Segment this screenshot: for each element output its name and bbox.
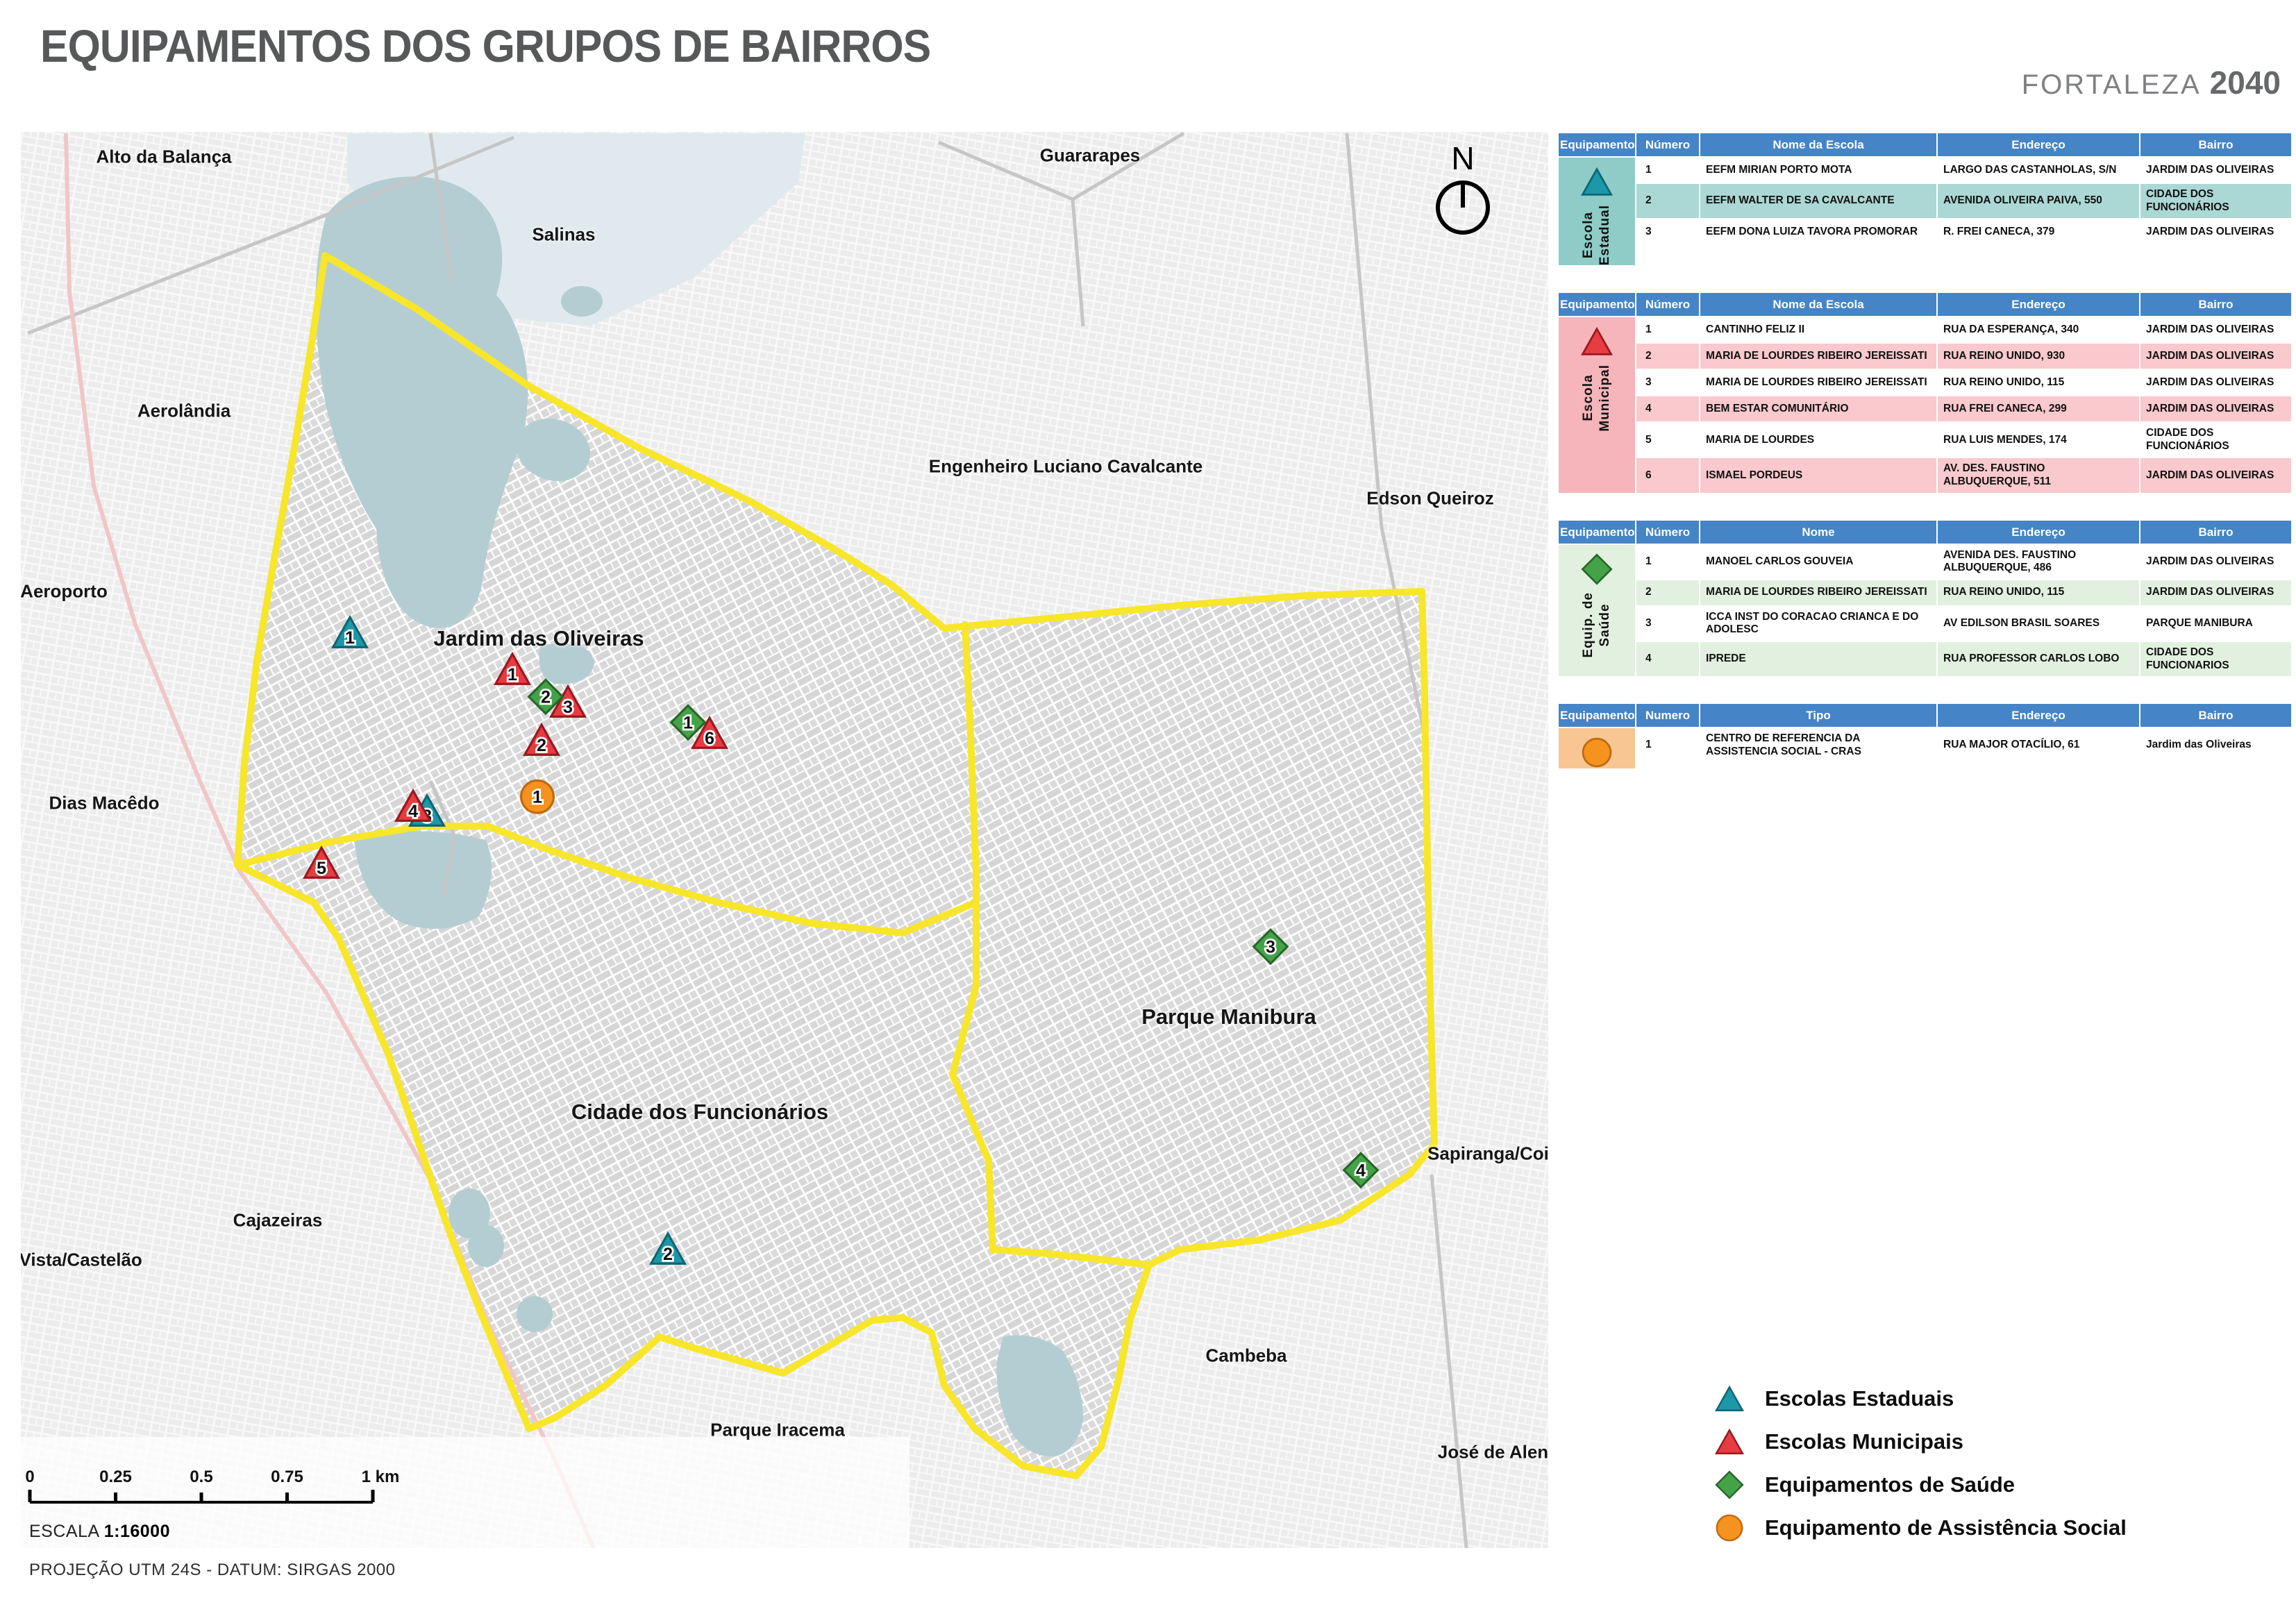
table-header-row: EquipamentoNúmeroNome da EscolaEndereçoB… bbox=[1559, 133, 2291, 156]
table-cell: 3 bbox=[1636, 370, 1699, 395]
map-marker-saude-3[interactable]: 3 bbox=[1252, 928, 1289, 966]
map-label: Aeroporto bbox=[21, 581, 108, 603]
table-cell: RUA REINO UNIDO, 115 bbox=[1938, 580, 2139, 605]
column-header: Número bbox=[1636, 133, 1699, 156]
social-icon: 1 bbox=[519, 778, 556, 816]
table-cell: MARIA DE LOURDES RIBEIRO JEREISSATI bbox=[1700, 370, 1936, 395]
map-label: Cajazeiras bbox=[233, 1210, 323, 1231]
table-cell: CENTRO DE REFERENCIA DA ASSISTENCIA SOCI… bbox=[1700, 728, 1936, 762]
table-group-cell: Escola Municipal bbox=[1559, 317, 1635, 492]
legend: Escolas EstaduaisEscolas MunicipaisEquip… bbox=[1713, 1383, 2127, 1544]
saude-icon: 2 bbox=[527, 678, 564, 716]
estadual-icon: 1 bbox=[331, 614, 369, 651]
municipal-icon bbox=[1715, 1427, 1744, 1456]
table-row: 2EEFM WALTER DE SA CAVALCANTEAVENIDA OLI… bbox=[1636, 184, 2291, 218]
municipal-icon: 2 bbox=[523, 721, 560, 759]
table-cell: 1 bbox=[1636, 545, 1699, 579]
svg-text:1: 1 bbox=[683, 714, 693, 733]
table-cell: CIDADE DOS FUNCIONÁRIOS bbox=[2140, 423, 2291, 457]
table-cell: Jardim das Oliveiras bbox=[2140, 728, 2291, 762]
table-row: 1CENTRO DE REFERENCIA DA ASSISTENCIA SOC… bbox=[1636, 728, 2291, 762]
legend-item: Escolas Municipais bbox=[1713, 1426, 2127, 1458]
table-cell: MARIA DE LOURDES bbox=[1700, 423, 1936, 457]
table-cell: JARDIM DAS OLIVEIRAS bbox=[2140, 370, 2291, 395]
scale-tick-label: 1 km bbox=[362, 1468, 400, 1487]
table-row: 2MARIA DE LOURDES RIBEIRO JEREISSATIRUA … bbox=[1636, 344, 2291, 369]
table-row: 4BEM ESTAR COMUNITÁRIORUA FREI CANECA, 2… bbox=[1636, 396, 2291, 421]
page: { "header": { "title": "EQUIPAMENTOS DOS… bbox=[0, 0, 2296, 1623]
table-cell: MANOEL CARLOS GOUVEIA bbox=[1700, 545, 1936, 579]
table-cell: AV. DES. FAUSTINO ALBUQUERQUE, 511 bbox=[1938, 458, 2139, 492]
scale-bar-graphic bbox=[28, 1488, 382, 1505]
svg-text:3: 3 bbox=[563, 698, 573, 717]
table-cell: R. FREI CANECA, 379 bbox=[1938, 219, 2139, 244]
table-cell: AVENIDA OLIVEIRA PAIVA, 550 bbox=[1938, 184, 2139, 218]
scale-tick-labels: 00.250.50.751 km bbox=[28, 1468, 403, 1488]
scale-value: 1:16000 bbox=[104, 1522, 170, 1541]
table-cell: JARDIM DAS OLIVEIRAS bbox=[2140, 396, 2291, 421]
scale-tick-label: 0.25 bbox=[99, 1468, 132, 1487]
map-label: Cambeba bbox=[1205, 1345, 1287, 1367]
table-cell: 1 bbox=[1636, 158, 1699, 183]
table-cell: BEM ESTAR COMUNITÁRIO bbox=[1700, 396, 1936, 421]
map-marker-municipal-4[interactable]: 4 bbox=[394, 787, 432, 825]
table-cell: JARDIM DAS OLIVEIRAS bbox=[2140, 545, 2291, 579]
table-cell: MARIA DE LOURDES RIBEIRO JEREISSATI bbox=[1700, 344, 1936, 369]
map-canvas[interactable]: Alto da BalançaSalinasGuararapesAerolând… bbox=[21, 132, 1548, 1548]
water-pond bbox=[561, 286, 603, 317]
table-cell: 2 bbox=[1636, 184, 1699, 218]
legend-icon bbox=[1713, 1470, 1745, 1499]
brand-logo: FORTALEZA2040 bbox=[2022, 64, 2281, 101]
legend-icon bbox=[1713, 1384, 1745, 1413]
scale-bar: 00.250.50.751 km bbox=[28, 1468, 403, 1508]
column-header: Endereço bbox=[1938, 704, 2139, 727]
table-cell: CIDADE DOS FUNCIONARIOS bbox=[2140, 642, 2291, 676]
legend-label: Equipamento de Assistência Social bbox=[1765, 1515, 2127, 1540]
table-cell: MARIA DE LOURDES RIBEIRO JEREISSATI bbox=[1700, 580, 1936, 605]
municipal-icon: 5 bbox=[303, 844, 340, 882]
table-cell: RUA DA ESPERANÇA, 340 bbox=[1938, 317, 2139, 342]
legend-item: Equipamento de Assistência Social bbox=[1713, 1512, 2127, 1544]
map-label: Edson Queiroz bbox=[1366, 488, 1493, 510]
table-group-cell: Escola Estadual bbox=[1559, 158, 1635, 265]
svg-text:1: 1 bbox=[508, 665, 517, 684]
table-row: 3MARIA DE LOURDES RIBEIRO JEREISSATIRUA … bbox=[1636, 370, 2291, 395]
estadual-icon bbox=[1715, 1384, 1744, 1413]
map-label: Parque Iracema bbox=[710, 1420, 845, 1441]
social-icon bbox=[1581, 737, 1613, 768]
municipal-icon: 1 bbox=[494, 650, 531, 688]
social-icon bbox=[1715, 1513, 1744, 1542]
table-cell: RUA PROFESSOR CARLOS LOBO bbox=[1938, 642, 2139, 676]
legend-label: Equipamentos de Saúde bbox=[1765, 1472, 2015, 1497]
svg-text:4: 4 bbox=[408, 802, 418, 821]
saude-icon: 1 bbox=[669, 704, 707, 741]
map-label: Jardim das Oliveiras bbox=[433, 626, 644, 651]
legend-icon bbox=[1713, 1513, 1745, 1542]
legend-label: Escolas Municipais bbox=[1765, 1429, 1963, 1454]
column-header: Equipamento bbox=[1559, 293, 1635, 316]
svg-text:2: 2 bbox=[663, 1245, 673, 1264]
table-cell: EEFM WALTER DE SA CAVALCANTE bbox=[1700, 184, 1936, 218]
brand-name: FORTALEZA bbox=[2022, 69, 2202, 100]
table-cell: 4 bbox=[1636, 396, 1699, 421]
equipment-table-social: EquipamentosNumeroTipoEndereçoBairro1CEN… bbox=[1559, 704, 2291, 768]
compass-icon bbox=[1432, 174, 1494, 237]
table-cell: JARDIM DAS OLIVEIRAS bbox=[2140, 158, 2291, 183]
municipal-icon: 4 bbox=[394, 787, 432, 825]
water-pond bbox=[517, 1296, 553, 1332]
table-cell: JARDIM DAS OLIVEIRAS bbox=[2140, 580, 2291, 605]
map-label: Sapiranga/Coité bbox=[1427, 1143, 1548, 1165]
map-marker-social-1[interactable]: 1 bbox=[519, 778, 556, 816]
scale-tick-label: 0.5 bbox=[190, 1468, 212, 1487]
svg-text:2: 2 bbox=[537, 736, 546, 755]
table-header-row: EquipamentoNúmeroNomeEndereçoBairro bbox=[1559, 521, 2291, 544]
column-header: Endereço bbox=[1938, 293, 2139, 316]
map-marker-municipal-1[interactable]: 1 bbox=[494, 650, 531, 688]
table-cell: JARDIM DAS OLIVEIRAS bbox=[2140, 344, 2291, 369]
table-cell: RUA REINO UNIDO, 930 bbox=[1938, 344, 2139, 369]
equipment-table-municipal: EquipamentoNúmeroNome da EscolaEndereçoB… bbox=[1559, 293, 2291, 492]
table-group-label: Equip. de Saúde bbox=[1580, 592, 1614, 658]
map-marker-municipal-5[interactable]: 5 bbox=[303, 844, 340, 882]
brand-year: 2040 bbox=[2210, 65, 2281, 101]
map-marker-saude-1[interactable]: 1 bbox=[669, 704, 707, 741]
column-header: Número bbox=[1636, 521, 1699, 544]
table-row: 1MANOEL CARLOS GOUVEIAAVENIDA DES. FAUST… bbox=[1636, 545, 2291, 579]
table-group-cell bbox=[1559, 728, 1635, 768]
table-row: 5MARIA DE LOURDESRUA LUIS MENDES, 174CID… bbox=[1636, 423, 2291, 457]
equipment-tables: EquipamentoNúmeroNome da EscolaEndereçoB… bbox=[1559, 133, 2291, 768]
table-row: 4IPREDERUA PROFESSOR CARLOS LOBOCIDADE D… bbox=[1636, 642, 2291, 676]
table-group-label: Escola Municipal bbox=[1580, 364, 1614, 432]
map-marker-saude-2[interactable]: 2 bbox=[527, 678, 564, 716]
page-title: EQUIPAMENTOS DOS GRUPOS DE BAIRROS bbox=[40, 19, 930, 72]
table-cell: JARDIM DAS OLIVEIRAS bbox=[2140, 458, 2291, 492]
table-cell: AVENIDA DES. FAUSTINO ALBUQUERQUE, 486 bbox=[1938, 545, 2139, 579]
column-header: Bairro bbox=[2140, 293, 2291, 316]
table-cell: 6 bbox=[1636, 458, 1699, 492]
svg-text:5: 5 bbox=[317, 859, 326, 878]
svg-text:1: 1 bbox=[345, 628, 355, 648]
equipment-table-saude: EquipamentoNúmeroNomeEndereçoBairroEquip… bbox=[1559, 521, 2291, 677]
table-cell: IPREDE bbox=[1700, 642, 1936, 676]
table-cell: 2 bbox=[1636, 580, 1699, 605]
saude-icon: 3 bbox=[1252, 928, 1289, 966]
table-header-row: EquipamentosNumeroTipoEndereçoBairro bbox=[1559, 704, 2291, 727]
table-cell: JARDIM DAS OLIVEIRAS bbox=[2140, 317, 2291, 342]
table-cell: 4 bbox=[1636, 642, 1699, 676]
table-cell: RUA FREI CANECA, 299 bbox=[1938, 396, 2139, 421]
column-header: Número bbox=[1636, 293, 1699, 316]
column-header: Equipamento bbox=[1559, 133, 1635, 156]
svg-text:3: 3 bbox=[1266, 938, 1275, 957]
legend-item: Escolas Estaduais bbox=[1713, 1383, 2127, 1415]
table-cell: 3 bbox=[1636, 219, 1699, 244]
column-header: Nome bbox=[1700, 521, 1936, 544]
north-label: N bbox=[1421, 142, 1505, 174]
map-label: Aerolândia bbox=[137, 401, 231, 422]
svg-text:4: 4 bbox=[1356, 1161, 1366, 1181]
column-header: Equipamentos bbox=[1559, 704, 1635, 727]
saude-icon: 4 bbox=[1342, 1152, 1380, 1189]
legend-label: Escolas Estaduais bbox=[1765, 1386, 1954, 1411]
map-label: Cidade dos Funcionários bbox=[571, 1100, 828, 1125]
north-compass: N bbox=[1421, 142, 1505, 240]
svg-text:1: 1 bbox=[533, 788, 542, 807]
map-label: Guararapes bbox=[1040, 145, 1141, 167]
table-row: 6ISMAEL PORDEUSAV. DES. FAUSTINO ALBUQUE… bbox=[1636, 458, 2291, 492]
saude-icon bbox=[1715, 1470, 1744, 1499]
map-label: José de Alencar bbox=[1438, 1442, 1548, 1463]
table-cell: LARGO DAS CASTANHOLAS, S/N bbox=[1938, 158, 2139, 183]
table-cell: 2 bbox=[1636, 344, 1699, 369]
column-header: Numero bbox=[1636, 704, 1699, 727]
map-marker-saude-4[interactable]: 4 bbox=[1342, 1152, 1380, 1189]
table-cell: RUA MAJOR OTACÍLIO, 61 bbox=[1938, 728, 2139, 762]
table-cell: CIDADE DOS FUNCIONÁRIOS bbox=[2140, 184, 2291, 218]
municipal-icon bbox=[1581, 326, 1613, 358]
table-cell: EEFM DONA LUIZA TAVORA PROMORAR bbox=[1700, 219, 1936, 244]
projection-text: PROJEÇÃO UTM 24S - DATUM: SIRGAS 2000 bbox=[29, 1561, 396, 1580]
table-cell: CANTINHO FELIZ II bbox=[1700, 317, 1936, 342]
table-row: 3ICCA INST DO CORACAO CRIANCA E DO ADOLE… bbox=[1636, 607, 2291, 641]
map-label: Salinas bbox=[532, 224, 595, 246]
table-cell: 1 bbox=[1636, 728, 1699, 762]
column-header: Bairro bbox=[2140, 521, 2291, 544]
table-cell: ICCA INST DO CORACAO CRIANCA E DO ADOLES… bbox=[1700, 607, 1936, 641]
legend-item: Equipamentos de Saúde bbox=[1713, 1469, 2127, 1501]
map-marker-estadual-1[interactable]: 1 bbox=[331, 614, 369, 651]
table-cell: 3 bbox=[1636, 607, 1699, 641]
water-pond bbox=[468, 1225, 504, 1267]
column-header: Endereço bbox=[1938, 521, 2139, 544]
table-cell: PARQUE MANIBURA bbox=[2140, 607, 2291, 641]
column-header: Bairro bbox=[2140, 704, 2291, 727]
column-header: Endereço bbox=[1938, 133, 2139, 156]
scale-tick-label: 0 bbox=[25, 1468, 34, 1487]
map-label: Alto da Balança bbox=[96, 146, 231, 168]
estadual-icon: 2 bbox=[649, 1230, 687, 1268]
table-cell: JARDIM DAS OLIVEIRAS bbox=[2140, 219, 2291, 244]
map-marker-estadual-2[interactable]: 2 bbox=[649, 1230, 687, 1268]
column-header: Nome da Escola bbox=[1700, 293, 1936, 316]
table-header-row: EquipamentoNúmeroNome da EscolaEndereçoB… bbox=[1559, 293, 2291, 316]
scale-text: ESCALA 1:16000 bbox=[29, 1522, 170, 1542]
table-group-cell: Equip. de Saúde bbox=[1559, 545, 1635, 677]
svg-text:2: 2 bbox=[541, 688, 551, 707]
column-header: Equipamento bbox=[1559, 521, 1635, 544]
legend-icon bbox=[1713, 1427, 1745, 1456]
map-label: Boa Vista/Castelão bbox=[21, 1250, 142, 1271]
scale-tick-label: 0.75 bbox=[271, 1468, 303, 1487]
table-row: 1CANTINHO FELIZ IIRUA DA ESPERANÇA, 340J… bbox=[1636, 317, 2291, 342]
map-label: Parque Manibura bbox=[1141, 1004, 1316, 1029]
equipment-table-estadual: EquipamentoNúmeroNome da EscolaEndereçoB… bbox=[1559, 133, 2291, 265]
estadual-icon bbox=[1581, 166, 1613, 198]
map-label: Dias Macêdo bbox=[49, 793, 160, 814]
map-marker-municipal-2[interactable]: 2 bbox=[523, 721, 560, 759]
map-artwork bbox=[21, 132, 1548, 1548]
table-cell: ISMAEL PORDEUS bbox=[1700, 458, 1936, 492]
saude-icon bbox=[1581, 553, 1613, 585]
table-row: 2MARIA DE LOURDES RIBEIRO JEREISSATIRUA … bbox=[1636, 580, 2291, 605]
table-cell: EEFM MIRIAN PORTO MOTA bbox=[1700, 158, 1936, 183]
map-label: Engenheiro Luciano Cavalcante bbox=[929, 456, 1203, 478]
table-cell: AV EDILSON BRASIL SOARES bbox=[1938, 607, 2139, 641]
column-header: Nome da Escola bbox=[1700, 133, 1936, 156]
table-row: 1EEFM MIRIAN PORTO MOTALARGO DAS CASTANH… bbox=[1636, 158, 2291, 183]
table-cell: 1 bbox=[1636, 317, 1699, 342]
table-row: 3EEFM DONA LUIZA TAVORA PROMORARR. FREI … bbox=[1636, 219, 2291, 244]
table-group-label: Escola Estadual bbox=[1580, 205, 1614, 265]
column-header: Tipo bbox=[1700, 704, 1936, 727]
table-cell: 5 bbox=[1636, 423, 1699, 457]
column-header: Bairro bbox=[2140, 133, 2291, 156]
table-cell: RUA REINO UNIDO, 115 bbox=[1938, 370, 2139, 395]
table-cell: RUA LUIS MENDES, 174 bbox=[1938, 423, 2139, 457]
